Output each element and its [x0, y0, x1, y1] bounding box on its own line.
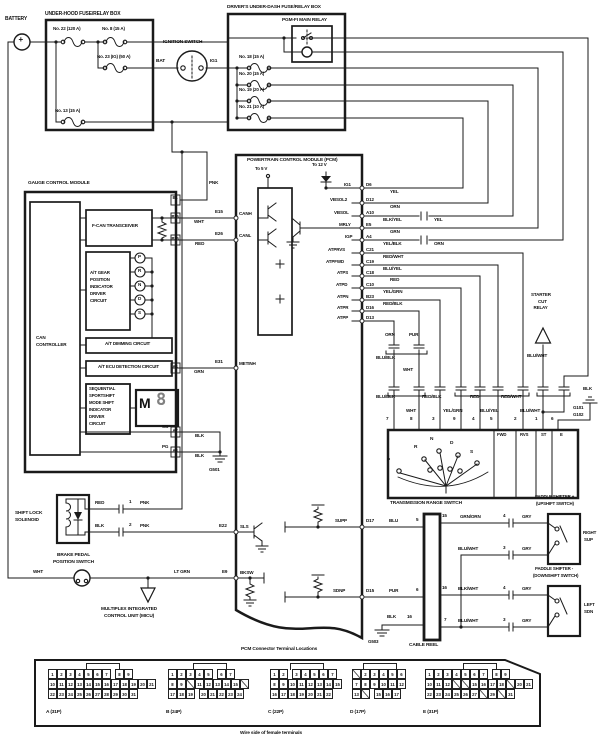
battery-plus-icon: +	[19, 36, 24, 44]
terminal-11: 11	[388, 679, 397, 689]
gauge-module-title: GAUGE CONTROL MODULE	[28, 181, 90, 186]
terminal-18: 18	[497, 679, 506, 689]
terminal-21: 21	[524, 679, 533, 689]
pcm-sdnp: SDNP	[333, 589, 345, 594]
wire-bluwht-lower: BLU/WHT	[520, 409, 540, 414]
pcm-atpr: ATPR	[337, 306, 348, 311]
up-conn-pin-3: 3	[503, 546, 505, 551]
wire-bluyel-atpfwd: BLU/YEL	[383, 267, 402, 272]
pcm-supp: SUPP	[335, 519, 347, 524]
pcm-pin-b23: B23	[366, 295, 374, 300]
wire-wht-lower: WHT	[406, 409, 416, 414]
terminal-blocked	[240, 679, 249, 689]
terminal-3: 3	[66, 669, 75, 679]
pcm-pin-d17: D17	[366, 519, 374, 524]
ground-g101: G101	[573, 406, 583, 411]
seq-line2: SPORTSHIFT	[89, 394, 115, 398]
terminal-20: 20	[306, 689, 315, 699]
gauge-pin-b1: B1	[173, 196, 178, 200]
terminal-2: 2	[279, 669, 288, 679]
terminal-6: 6	[93, 669, 102, 679]
fuse-13-label: No. 13 (15 A)	[55, 109, 80, 114]
wire-redblk-lower: RED/BLK	[422, 395, 441, 400]
wire-blkyel-vbsol: BLK/YEL	[383, 218, 402, 223]
terminal-12: 12	[204, 679, 213, 689]
pcm-pin-e9: E9	[222, 570, 227, 575]
terminal-4: 4	[379, 669, 388, 679]
underdash-box-title: DRIVER'S UNDER-DASH FUSE/RELAY BOX	[227, 5, 321, 10]
terminal-30: 30	[120, 689, 129, 699]
wire-yelgrn-lower: YEL/GRN	[443, 409, 462, 414]
gauge-pin-b16: B16	[172, 215, 179, 219]
terminal-12: 12	[443, 679, 452, 689]
trs-pin-8: 8	[410, 417, 412, 422]
terminal-1: 1	[270, 669, 279, 679]
pcm-pin-d6: D6	[366, 183, 371, 188]
terminal-16: 16	[479, 679, 488, 689]
terminal-4: 4	[452, 669, 461, 679]
fcan-transceiver-label: F-CAN TRANSCEIVER	[92, 224, 138, 229]
trs-pin-9: 9	[453, 417, 455, 422]
ecu-detection-label: A/T ECU DETECTION CIRCUIT	[98, 365, 159, 370]
terminal-18: 18	[177, 689, 186, 699]
trs-pin-6: 6	[551, 417, 553, 422]
m-display-digit: 8	[156, 392, 166, 410]
gauge-pin-a4: A4	[173, 365, 178, 369]
paddle-dn-line2: (DOWNSHIFT SWITCH)	[533, 574, 578, 579]
to-5v-label: To 5 V	[255, 167, 267, 172]
terminal-28: 28	[102, 689, 111, 699]
trs-pos-n: N	[430, 437, 433, 442]
terminal-10: 10	[48, 679, 57, 689]
wire-redwht-lower: RED/WHT	[501, 395, 521, 400]
gauge-pin-a7: A7	[173, 429, 178, 433]
wire-red-lower: RED	[470, 395, 479, 400]
terminal-4: 4	[195, 669, 204, 679]
pcm-pin-d16: D16	[366, 306, 374, 311]
terminal-22: 22	[425, 689, 434, 699]
seq-line5: DRIVER	[89, 415, 104, 419]
wire-wht-canh: WHT	[194, 220, 204, 225]
trs-pin-7: 7	[386, 417, 388, 422]
terminal-27: 27	[93, 689, 102, 699]
pcm-mrly: MRLY	[339, 223, 351, 228]
ignition-switch-title: IGNITION SWITCH	[163, 40, 202, 45]
terminal-2: 2	[361, 669, 370, 679]
trs-col-e: E	[560, 433, 563, 437]
terminal-1: 1	[425, 669, 434, 679]
wire-ltgrn-brake: LT GRN	[174, 570, 190, 575]
battery-label: BATTERY	[5, 17, 27, 22]
pcm-canl: CANL	[239, 234, 251, 239]
wiring-diagram-page: BATTERY+UNDER-HOOD FUSE/RELAY BOXNo. 22 …	[0, 0, 608, 747]
terminal-5: 5	[388, 669, 397, 679]
pcm-vbsol2: VBSOL2	[330, 198, 347, 203]
seq-line4: INDICATOR	[89, 408, 111, 412]
terminal-27: 27	[470, 689, 479, 699]
trs-pos-p: P	[387, 458, 390, 463]
terminal-21: 21	[315, 689, 324, 699]
terminal-13: 13	[315, 679, 324, 689]
trs-title: TRANSMISSION RANGE SWITCH	[390, 501, 462, 506]
fuse-22-label: No. 22 (120 A)	[53, 27, 81, 32]
terminal-9: 9	[279, 679, 288, 689]
terminal-24: 24	[66, 689, 75, 699]
terminal-12: 12	[306, 679, 315, 689]
wire-bluwht-starter: BLU/WHT	[527, 354, 547, 359]
terminal-14: 14	[222, 679, 231, 689]
wire-blk-a8: BLK	[195, 454, 204, 459]
terminal-6: 6	[397, 669, 406, 679]
pcm-pin-a4: A4	[366, 235, 371, 240]
terminal-22: 22	[324, 689, 333, 699]
ground-g501: G501	[209, 468, 220, 473]
pcm-metinh: METINH	[239, 362, 256, 367]
terminal-20: 20	[199, 689, 208, 699]
terminal-23: 23	[57, 689, 66, 699]
connector-b-label: B (24P)	[166, 710, 181, 715]
terminal-17: 17	[392, 689, 401, 699]
terminal-5: 5	[310, 669, 319, 679]
terminal-24: 24	[443, 689, 452, 699]
pcm-connector-locations-title: PCM Connector Terminal Locations	[241, 647, 317, 652]
atgear-line1: A/T GEAR	[90, 271, 110, 276]
terminal-blocked	[497, 689, 506, 699]
wire-side-note: Wire side of female terminals	[240, 731, 302, 736]
wire-blk-a7: BLK	[195, 434, 204, 439]
terminal-31: 31	[506, 689, 515, 699]
can-controller-line2: CONTROLLER	[36, 343, 66, 348]
terminal-blocked	[461, 679, 470, 689]
atgear-line5: CIRCUIT	[90, 299, 107, 304]
fuse-20-label: No. 20 (15 A)	[239, 72, 264, 77]
pcm-vbsol: VBSOL	[334, 211, 349, 216]
reel-left-pin-5: 5	[416, 518, 418, 523]
seq-line3: MODE SHIFT	[89, 401, 114, 405]
wire-bluwht-dn: BLU/WHT	[458, 619, 478, 624]
terminal-7: 7	[226, 669, 235, 679]
wire-grn-mrly: GRN	[390, 230, 400, 235]
terminal-22: 22	[48, 689, 57, 699]
dimming-circuit-label: A/T DIMMING CIRCUIT	[105, 342, 150, 347]
trs-col-fwd: FWD	[497, 433, 506, 437]
pcm-pin-c19: C19	[366, 260, 374, 265]
terminal-10: 10	[379, 679, 388, 689]
shift-lock-line2: SOLENOID	[15, 518, 39, 523]
pcm-pin-c10: C10	[366, 283, 374, 288]
terminal-25: 25	[452, 689, 461, 699]
reel-left-pin-6: 6	[416, 588, 418, 593]
terminal-15: 15	[374, 689, 383, 699]
pos-n: N	[138, 283, 141, 288]
reel-left-pin-16: 16	[407, 615, 412, 620]
seq-line6: CIRCUIT	[89, 422, 105, 426]
terminal-blocked	[352, 669, 361, 679]
terminal-blocked	[479, 689, 488, 699]
terminal-4: 4	[75, 669, 84, 679]
gauge-pin-a8: A8	[173, 449, 178, 453]
terminal-18: 18	[288, 689, 297, 699]
connector-grid-e: 1234567891011121516171820212223242526272…	[425, 669, 533, 699]
terminal-29: 29	[488, 689, 497, 699]
left-paddle-line1: LEFT	[584, 603, 595, 608]
pcm-pin-e15: E15	[215, 210, 223, 215]
terminal-17: 17	[488, 679, 497, 689]
terminal-8: 8	[115, 669, 124, 679]
terminal-23: 23	[226, 689, 235, 699]
right-paddle-line1: RIGHT	[583, 531, 596, 536]
connector-a-label: A (31P)	[46, 710, 61, 715]
terminal-19: 19	[297, 689, 306, 699]
atgear-line4: DRIVER	[90, 292, 106, 297]
connector-d-label: D (17P)	[350, 710, 365, 715]
trs-pin-4: 4	[472, 417, 474, 422]
paddle-up-line1: PADDLE SHIFTER +	[535, 495, 574, 500]
terminal-9: 9	[370, 679, 379, 689]
gauge-pin-b15: B15	[172, 237, 179, 241]
terminal-15: 15	[93, 679, 102, 689]
terminal-4: 4	[301, 669, 310, 679]
terminal-blocked	[186, 679, 195, 689]
terminal-8: 8	[168, 679, 177, 689]
terminal-5: 5	[204, 669, 213, 679]
wire-blkwht-dn: BLK/WHT	[458, 587, 478, 592]
wire-pnk-solenoid2: PNK	[140, 524, 149, 529]
pos-r: R	[138, 269, 141, 274]
can-controller-line1: CAN	[36, 336, 46, 341]
pcm-pin-c18: C18	[366, 271, 374, 276]
terminal-24: 24	[235, 689, 244, 699]
wire-redblk-atpn: RED/BLK	[383, 302, 402, 307]
dn-conn-pin-4: 4	[503, 586, 505, 591]
starter-relay-line1: STARTER	[531, 293, 551, 298]
terminal-11: 11	[195, 679, 204, 689]
terminal-16: 16	[270, 689, 279, 699]
terminal-1: 1	[48, 669, 57, 679]
pcm-pin-a10: A10	[366, 211, 374, 216]
terminal-6: 6	[217, 669, 226, 679]
terminal-3: 3	[370, 669, 379, 679]
trs-pin-5: 5	[490, 417, 492, 422]
wire-yel-ig1: YEL	[390, 190, 398, 195]
pcm-atpn: ATPN	[337, 295, 348, 300]
wire-orn-igp: ORN	[434, 242, 444, 247]
pos-p: P	[138, 255, 141, 260]
terminal-17: 17	[279, 689, 288, 699]
connector-grid-c: 12345678910111213141516171819202122	[270, 669, 342, 699]
connector-c-label: C (22P)	[268, 710, 283, 715]
terminal-17: 17	[168, 689, 177, 699]
fuse-23-label: No. 23 (IG) (50 A)	[97, 55, 130, 60]
right-paddle-line2: SUP	[584, 538, 593, 543]
m-display-letter: M	[139, 396, 151, 411]
terminal-2: 2	[434, 669, 443, 679]
pcm-pin-e5: E5	[366, 223, 371, 228]
trs-pos-d: D	[450, 441, 453, 446]
wire-gry-2: GRY	[522, 547, 531, 552]
terminal-8: 8	[270, 679, 279, 689]
terminal-12: 12	[66, 679, 75, 689]
terminal-21: 21	[147, 679, 156, 689]
terminal-18: 18	[120, 679, 129, 689]
wire-pnk-b1: PNK	[209, 181, 218, 186]
reel-right-pin-7: 7	[444, 618, 446, 623]
terminal-26: 26	[84, 689, 93, 699]
terminal-12: 12	[397, 679, 406, 689]
pcm-atpd: ATPD	[336, 283, 347, 288]
terminal-3: 3	[186, 669, 195, 679]
to-12v-label: To 12 V	[312, 163, 327, 168]
terminal-9: 9	[501, 669, 510, 679]
terminal-2: 2	[177, 669, 186, 679]
pcm-sls: SLS	[240, 525, 248, 530]
shift-lock-line1: SHIFT LOCK	[15, 511, 42, 516]
wire-red-atps: RED	[390, 278, 399, 283]
trs-pos-s: S	[470, 450, 473, 455]
wire-gry-3: GRY	[522, 587, 531, 592]
pos-s: S	[138, 311, 141, 316]
wire-gry-1: GRY	[522, 515, 531, 520]
terminal-15: 15	[470, 679, 479, 689]
wire-wht-brake: WHT	[33, 570, 43, 575]
micu-line2: CONTROL UNIT (MICU)	[104, 614, 154, 619]
wire-pur-sdnp: PUR	[389, 589, 398, 594]
cable-reel-title: CABLE REEL	[409, 643, 438, 648]
wire-pnk-solenoid1: PNK	[140, 501, 149, 506]
ground-g102: G102	[573, 413, 583, 418]
wire-redwht-atprvs: RED/WHT	[383, 255, 403, 260]
terminal-14: 14	[324, 679, 333, 689]
pcm-pin-e31: E31	[215, 360, 223, 365]
gauge-pg: PG	[162, 445, 168, 450]
terminal-13: 13	[352, 689, 361, 699]
paddle-dn-line1: PADDLE SHIFTER -	[535, 567, 573, 572]
underhood-box-title: UNDER-HOOD FUSE/RELAY BOX	[45, 12, 120, 17]
terminal-6: 6	[319, 669, 328, 679]
pcm-ig1: IG1	[344, 183, 351, 188]
solenoid-pin-2: 2	[129, 523, 131, 528]
atgear-line3: INDICATOR	[90, 285, 113, 290]
wire-red-canl: RED	[195, 242, 204, 247]
pcm-pin-c21: C21	[366, 248, 374, 253]
pcm-atps: ATPS	[337, 271, 348, 276]
pcm-canh: CANH	[239, 212, 252, 217]
pcm-pin-e22: E22	[219, 524, 227, 529]
terminal-7: 7	[102, 669, 111, 679]
terminal-9: 9	[177, 679, 186, 689]
dn-conn-pin-3: 3	[503, 618, 505, 623]
reel-right-pin-16: 16	[442, 586, 447, 591]
bat-terminal-label: BAT	[156, 59, 165, 64]
wire-wht-upper: WHT	[403, 368, 413, 373]
terminal-3: 3	[443, 669, 452, 679]
fuse-18-label: No. 18 (15 A)	[239, 55, 264, 60]
fuse-21-label: No. 21 (10 A)	[239, 105, 264, 110]
diagram-canvas	[0, 0, 608, 747]
connector-e-label: E (31P)	[423, 710, 438, 715]
terminal-22: 22	[217, 689, 226, 699]
terminal-15: 15	[231, 679, 240, 689]
ground-g503: G503	[368, 640, 378, 645]
terminal-7: 7	[479, 669, 488, 679]
terminal-23: 23	[434, 689, 443, 699]
pcm-igp: IGP	[345, 235, 352, 240]
wire-grnorn: GRN/ORN	[460, 515, 481, 520]
fuse-19-label: No. 19 (20 A)	[239, 88, 264, 93]
pcm-pin-e26: E26	[215, 232, 223, 237]
terminal-blocked	[452, 679, 461, 689]
wire-yelgrn-atpd: YEL/GRN	[383, 290, 402, 295]
atgear-line2: POSITION	[90, 278, 110, 283]
terminal-1: 1	[168, 669, 177, 679]
terminal-15: 15	[333, 679, 342, 689]
terminal-7: 7	[352, 679, 361, 689]
terminal-11: 11	[297, 679, 306, 689]
connector-grid-b: 12345678911121314151718192021222324	[168, 669, 249, 699]
starter-relay-line3: RELAY	[534, 306, 548, 311]
trs-col-rvs: RVS	[520, 433, 528, 437]
wire-blublk-upper: BLU/BLK	[376, 356, 395, 361]
terminal-5: 5	[461, 669, 470, 679]
terminal-7: 7	[328, 669, 337, 679]
terminal-10: 10	[425, 679, 434, 689]
terminal-3: 3	[292, 669, 301, 679]
wire-blk-g101: BLK	[583, 387, 592, 392]
trs-col-st: ST	[541, 433, 546, 437]
pos-d: D	[138, 297, 141, 302]
pcm-bksw: BKSW	[240, 571, 253, 576]
wire-blk-solenoid: BLK	[95, 524, 104, 529]
solenoid-pin-1: 1	[129, 500, 131, 505]
wire-red-solenoid: RED	[95, 501, 104, 506]
wire-yelblk-igp: YEL/BLK	[383, 242, 402, 247]
terminal-13: 13	[213, 679, 222, 689]
terminal-17: 17	[111, 679, 120, 689]
terminal-9: 9	[124, 669, 133, 679]
terminal-25: 25	[75, 689, 84, 699]
terminal-8: 8	[361, 679, 370, 689]
reel-right-pin-15: 15	[442, 514, 447, 519]
pcm-pin-d15: D15	[366, 589, 374, 594]
terminal-20: 20	[515, 679, 524, 689]
wire-blu-supp: BLU	[389, 519, 398, 524]
pcm-atpfwd: ATPFWD	[326, 260, 344, 265]
connector-grid-a: 1234567891011121314151617181920212223242…	[48, 669, 156, 699]
trs-pos-r: R	[414, 445, 417, 450]
wire-orn-vbsol2: ORN	[390, 205, 400, 210]
terminal-21: 21	[208, 689, 217, 699]
gauge-sg: SG	[162, 425, 168, 430]
pcm-pin-d13: D13	[366, 316, 374, 321]
wire-pur-atpp: PUR	[409, 333, 418, 338]
connector-grid-d: 2345678910111213151617	[352, 669, 406, 699]
pcm-atprvs: ATPRVS	[328, 248, 345, 253]
wire-grn-metinh: GRN	[194, 370, 204, 375]
wire-bluyel-lower: BLU/YEL	[480, 409, 499, 414]
pgm-relay-title: PGM-FI MAIN RELAY	[282, 18, 327, 23]
brake-switch-line1: BRAKE PEDAL	[57, 553, 90, 558]
trs-pin-3: 3	[432, 417, 434, 422]
terminal-26: 26	[461, 689, 470, 699]
terminal-19: 19	[186, 689, 195, 699]
terminal-6: 6	[470, 669, 479, 679]
terminal-16: 16	[383, 689, 392, 699]
pcm-atpp: ATPP	[337, 316, 348, 321]
trs-pin-1: 1	[535, 417, 537, 422]
paddle-up-line2: (UPSHIFT SWITCH)	[536, 502, 574, 507]
wire-blublk-lower: BLU/BLK	[376, 395, 395, 400]
terminal-16: 16	[102, 679, 111, 689]
